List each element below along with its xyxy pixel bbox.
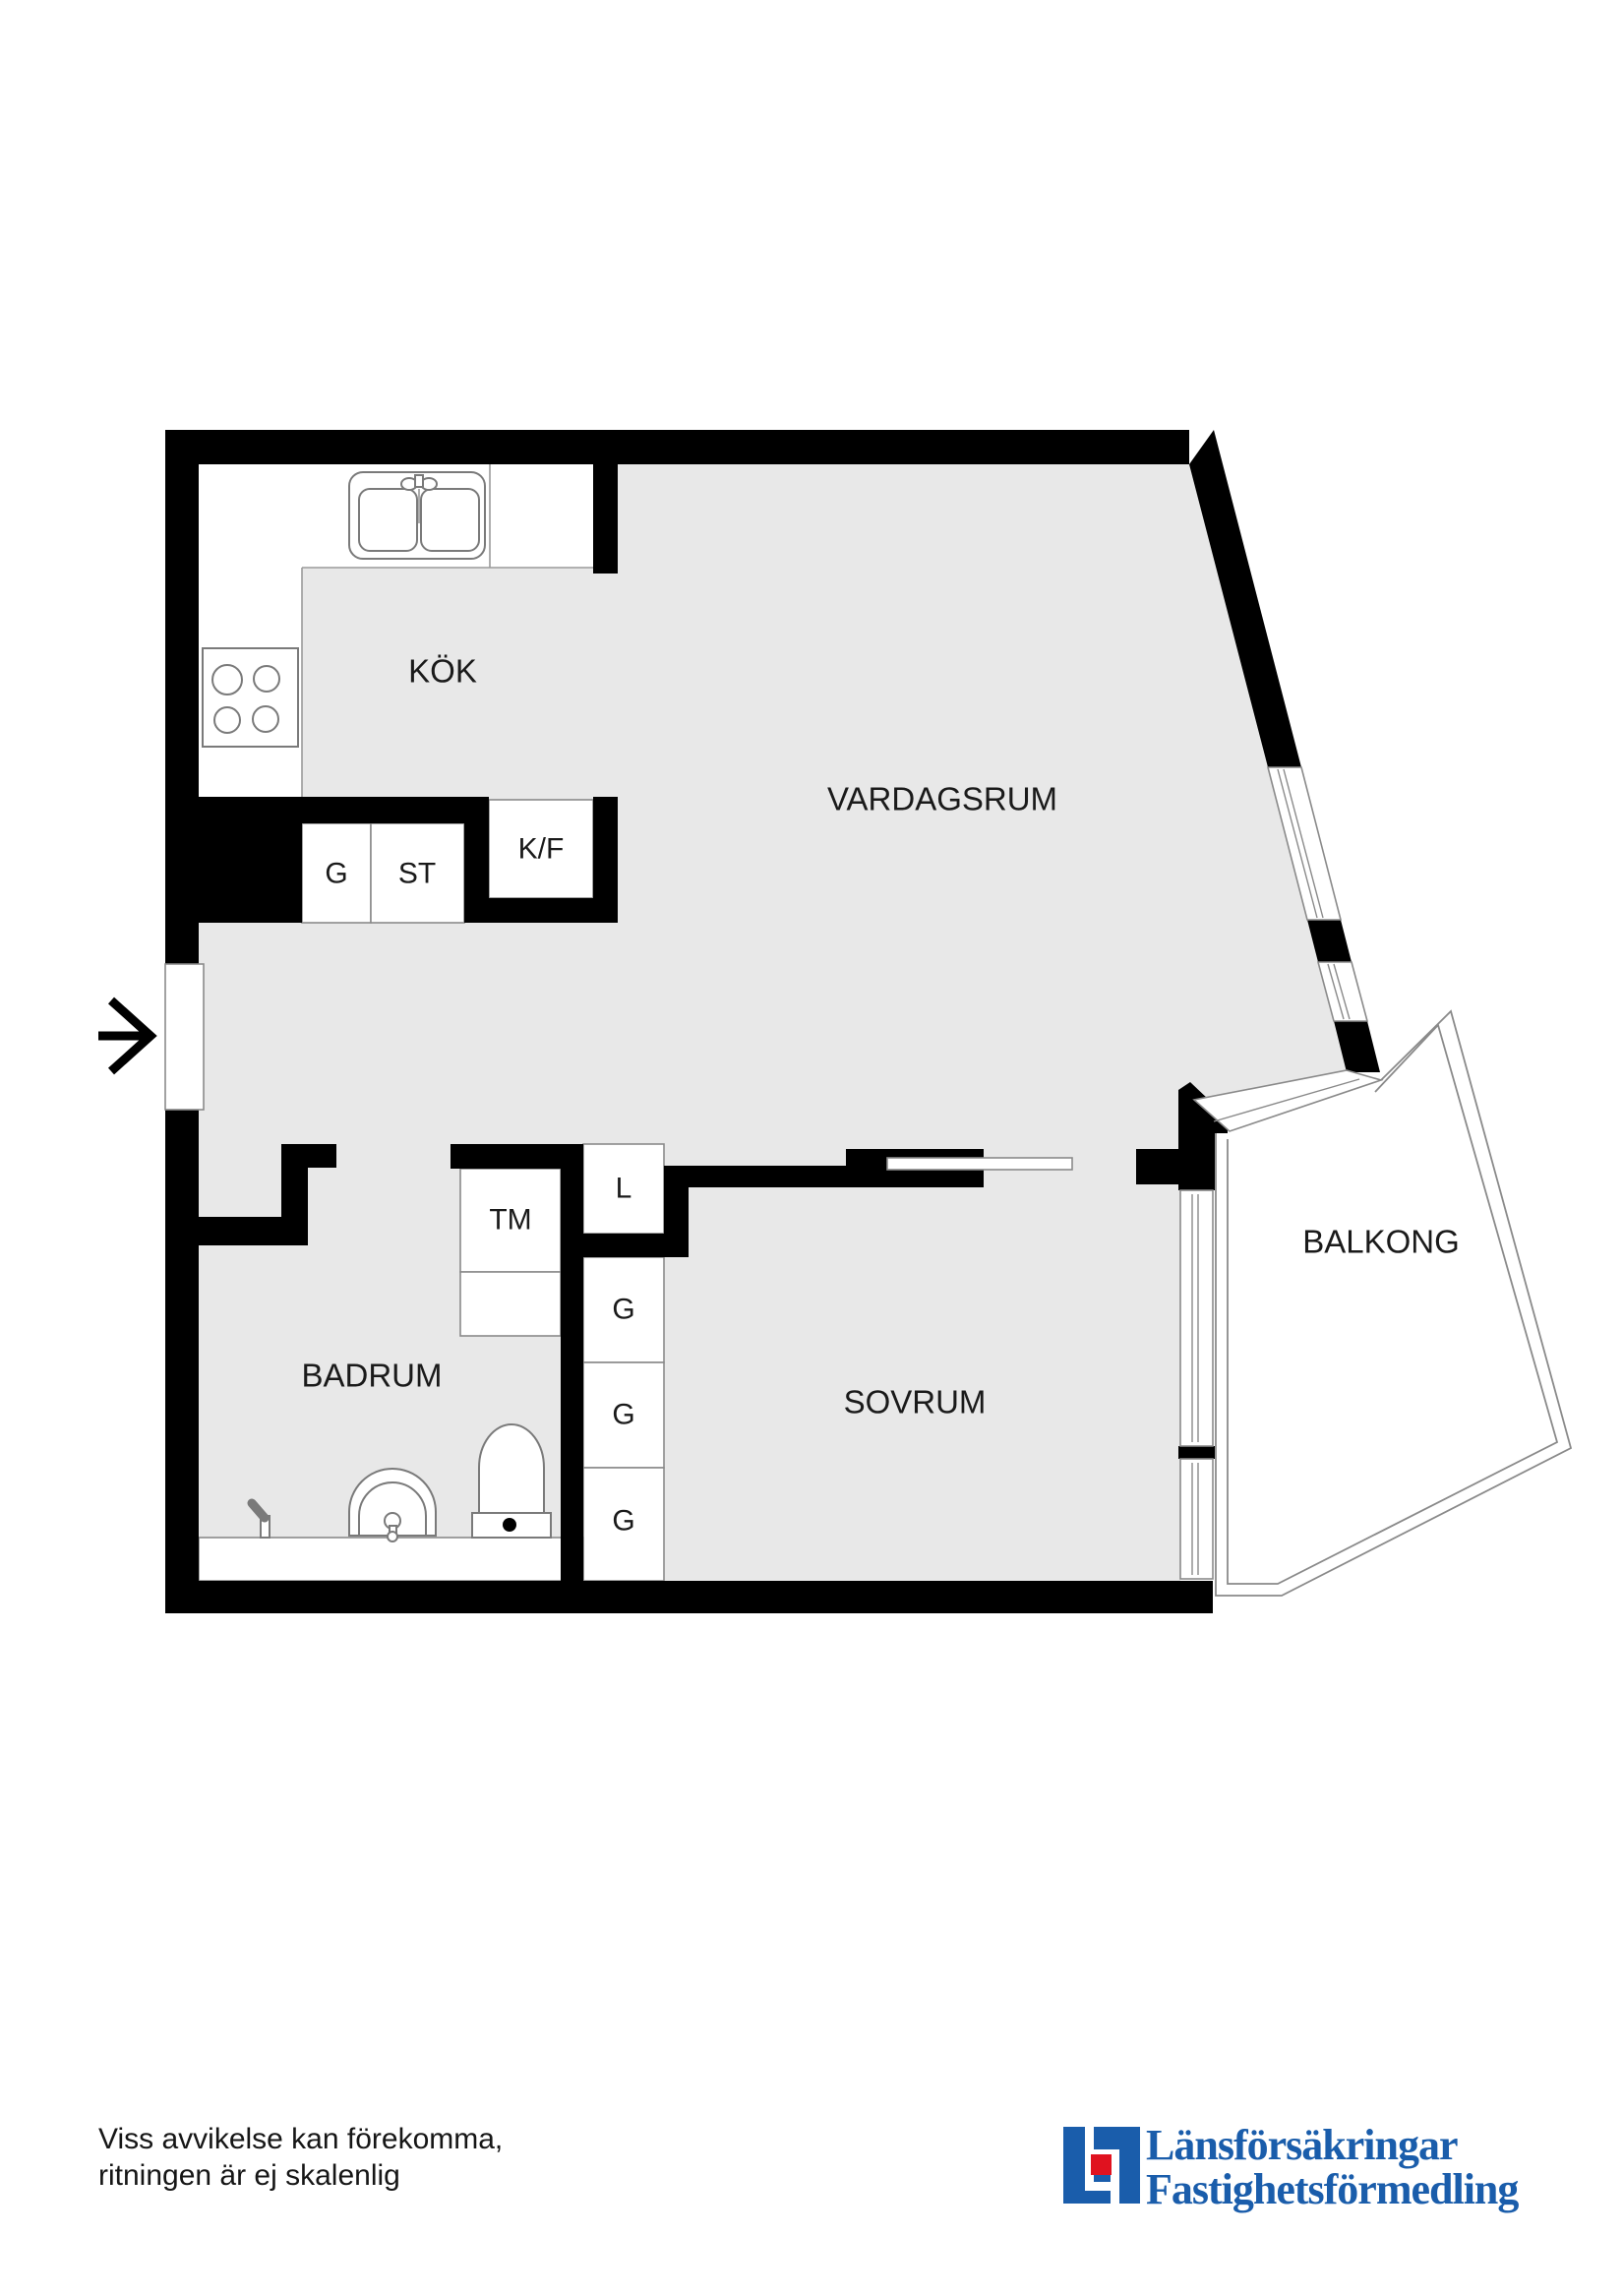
lf-logo-icon xyxy=(1063,2127,1140,2204)
wall-below-kf xyxy=(489,898,618,923)
lf-logo: Länsförsäkringar Fastighetsförmedling xyxy=(1063,2127,1585,2255)
wall-bottom xyxy=(165,1581,1213,1613)
wall-hall-block xyxy=(199,797,302,923)
wall-tm-top xyxy=(451,1144,583,1169)
closet-label-g3: G xyxy=(612,1505,634,1538)
wall-above-gst xyxy=(302,797,464,823)
lf-logo-name-line-1: Länsförsäkringar xyxy=(1146,2123,1518,2167)
floor-area xyxy=(199,464,1347,1581)
window-bedroom-upper xyxy=(1180,1190,1213,1446)
wall-window-separator xyxy=(1178,1446,1215,1459)
room-label-balcony: BALKONG xyxy=(1302,1224,1460,1260)
window-bedroom-lower xyxy=(1180,1459,1213,1579)
entry-door-opening xyxy=(165,964,204,1110)
wall-t-stub xyxy=(1136,1149,1178,1184)
wall-bathroom-entry xyxy=(199,1217,308,1245)
wall-kitchen-stub xyxy=(593,430,618,574)
bathroom-counter-strip xyxy=(199,1538,583,1581)
room-label-bathroom: BADRUM xyxy=(301,1358,442,1394)
wall-right-of-l xyxy=(664,1166,689,1257)
closet-label-g1: G xyxy=(612,1294,634,1326)
floor-plan-page: KÖK VARDAGSRUM BADRUM SOVRUM BALKONG G S… xyxy=(0,0,1623,2296)
wall-bathroom-bedroom-divider xyxy=(561,1169,583,1581)
logo-red-square xyxy=(1091,2154,1112,2175)
room-label-living-room: VARDAGSRUM xyxy=(827,781,1057,817)
entry-arrow-icon xyxy=(98,1000,150,1071)
closet-label-g-hall: G xyxy=(325,858,347,890)
wall-right-of-kf xyxy=(593,797,618,898)
sliding-door xyxy=(887,1158,1072,1170)
kitchen-sink-icon xyxy=(349,472,485,559)
lf-logo-name-line-2: Fastighetsförmedling xyxy=(1146,2167,1518,2211)
floor-plan-svg: KÖK VARDAGSRUM BADRUM SOVRUM BALKONG G S… xyxy=(0,0,1623,2296)
closet-label-g2: G xyxy=(612,1399,634,1431)
tm-counter-box xyxy=(460,1272,561,1336)
closet-label-l: L xyxy=(616,1173,632,1205)
wall-left-lower xyxy=(165,1110,199,1613)
room-label-kitchen: KÖK xyxy=(408,653,477,690)
closet-label-kf: K/F xyxy=(518,833,565,866)
lf-logo-text: Länsförsäkringar Fastighetsförmedling xyxy=(1146,2123,1518,2211)
wall-left-upper xyxy=(165,430,199,964)
room-label-bedroom: SOVRUM xyxy=(844,1384,987,1420)
closet-label-tm: TM xyxy=(489,1204,531,1237)
disclaimer-line-2: ritningen är ej skalenlig xyxy=(98,2157,503,2194)
disclaimer-text: Viss avvikelse kan förekomma, ritningen … xyxy=(98,2121,503,2194)
wall-top xyxy=(165,430,1189,464)
stove-icon xyxy=(203,648,298,747)
disclaimer-line-1: Viss avvikelse kan förekomma, xyxy=(98,2121,503,2157)
wall-bathroom-notch xyxy=(281,1144,336,1168)
closet-label-st: ST xyxy=(398,858,436,890)
wall-right-of-st xyxy=(464,797,489,923)
